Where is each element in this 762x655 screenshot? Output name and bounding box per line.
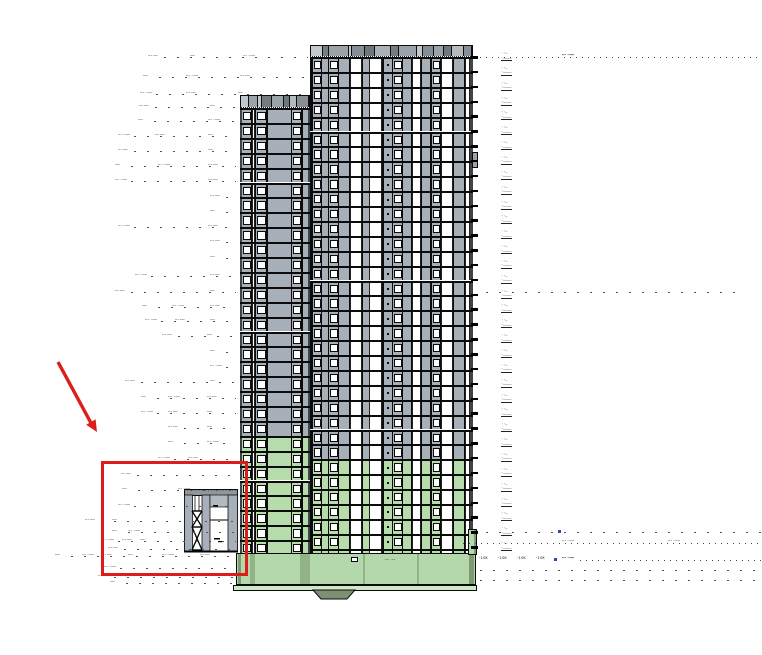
annotation-text: —— (168, 440, 173, 444)
annotation-text: —··—— (210, 364, 222, 368)
annotation-text: —— (110, 580, 115, 584)
level-tick (471, 205, 478, 208)
level-tick (471, 383, 478, 386)
level-tick (471, 130, 478, 133)
level-tick (471, 398, 478, 401)
level-label: ··—·———— (501, 156, 512, 165)
leader-line (226, 352, 236, 353)
annotation-text: —— (141, 395, 146, 399)
level-label: ··—·———— (501, 111, 512, 120)
level-label: ··—·———— (501, 349, 512, 358)
leader-line (178, 336, 236, 337)
leader-line (174, 459, 236, 460)
leader-line (480, 580, 762, 581)
annotation-text: —··—— (158, 456, 170, 460)
level-label: ··—·———— (501, 245, 512, 254)
level-tick (471, 86, 478, 89)
level-label: ··—·———— (501, 379, 512, 388)
annotation-text: —·—— (85, 518, 95, 522)
leader-line (131, 292, 236, 293)
level-tick (471, 412, 478, 415)
level-label: ··—·———— (501, 186, 512, 195)
leader-line (226, 197, 236, 198)
level-tick (471, 353, 478, 356)
level-label: ··—·———— (501, 290, 512, 299)
level-label: ··—·———— (501, 423, 512, 432)
leader-line (159, 77, 308, 78)
level-label: ··—·———— (501, 304, 512, 313)
level-tick (471, 487, 478, 490)
leader-line (226, 258, 236, 259)
level-label: ··—·———— (501, 260, 512, 269)
annotation-text: —— (138, 118, 143, 122)
leader-line (486, 532, 762, 533)
leader-line (480, 570, 762, 571)
level-tick (471, 502, 478, 505)
level-tick (471, 71, 478, 74)
level-tick (471, 308, 478, 311)
leader-line (131, 166, 236, 167)
level-label: ··—·———— (501, 334, 512, 343)
leader-line (134, 136, 236, 137)
annotation-text: —··—— (141, 410, 153, 414)
annotation-text: —··—— (145, 318, 157, 322)
annotation-text: —·—— (125, 379, 135, 383)
annotation-text: —··—— (140, 91, 152, 95)
level-tick (471, 279, 478, 282)
annotation-text: —— (115, 163, 120, 167)
level-tick (471, 323, 478, 326)
leader-line (184, 443, 236, 444)
markup-rectangle (101, 461, 248, 576)
leader-line (580, 560, 762, 561)
level-label: ··—·———— (501, 394, 512, 403)
leader-line (114, 577, 236, 578)
annotation-text: —— (210, 209, 215, 213)
leader-line (161, 321, 236, 322)
level-tick (471, 427, 478, 430)
level-label: ··—·———— (501, 512, 512, 521)
annotation-text: —··—— (668, 539, 680, 543)
level-tick (471, 145, 478, 148)
annotation-text: —··—— (135, 273, 147, 277)
leader-line (134, 151, 236, 152)
annotation-text: —··—— (562, 539, 574, 543)
level-label: ··—·———— (501, 498, 512, 507)
elevation-drawing-canvas: ·— —· —·—————··—————··———·———··———·—————… (0, 0, 762, 655)
annotation-text: —··—— (562, 556, 574, 560)
level-label: ··—·———— (501, 201, 512, 210)
leader-line (154, 121, 236, 122)
level-tick (471, 219, 478, 222)
level-tick (471, 516, 478, 519)
annotation-text: —— (210, 255, 215, 259)
level-label: ··—·———— (501, 275, 512, 284)
leader-line (134, 227, 236, 228)
level-label: ··—·———— (501, 82, 512, 91)
level-tick (471, 190, 478, 193)
level-label: ··—·———— (501, 230, 512, 239)
leader-line (131, 181, 236, 182)
leader-line (141, 382, 236, 383)
level-tick (471, 338, 478, 341)
annotation-text: ·ısĸ (478, 556, 488, 560)
level-tick (471, 531, 478, 534)
level-tick (471, 101, 478, 104)
level-tick (471, 249, 478, 252)
level-label: ··—·———— (501, 364, 512, 373)
annotation-text: —·—— (118, 148, 128, 152)
level-label: ··—·———— (501, 438, 512, 447)
annotation-text: —·—— (139, 104, 149, 108)
annotation-text: ·ısĸ (535, 556, 545, 560)
level-tick (471, 115, 478, 118)
level-tick (471, 368, 478, 371)
annotation-text: —·—— (210, 194, 220, 198)
level-label: ··—·———— (501, 171, 512, 180)
annotation-text: —— (143, 74, 148, 78)
annotation-text: —— (142, 304, 147, 308)
level-tick (471, 160, 478, 163)
level-tick (471, 294, 478, 297)
level-tick (471, 175, 478, 178)
level-tick (471, 472, 478, 475)
annotation-text: —— (55, 553, 60, 557)
leader-line (486, 292, 742, 293)
blue-tick (558, 530, 561, 533)
annotation-text: —··—— (118, 133, 130, 137)
annotation-text: —·—— (168, 425, 178, 429)
leader-line (226, 242, 236, 243)
leader-line (158, 307, 236, 308)
leader-line (226, 367, 236, 368)
level-tick (471, 457, 478, 460)
level-tick (471, 442, 478, 445)
leader-line (226, 212, 236, 213)
level-label: ··—·———— (501, 67, 512, 76)
level-label: ··—·———— (501, 408, 512, 417)
level-tick (471, 234, 478, 237)
annotation-text: —··—— (562, 53, 574, 57)
annotation-text: —··—— (118, 224, 130, 228)
level-tick (471, 264, 478, 267)
leader-line (157, 413, 236, 414)
leader-line (126, 583, 236, 584)
leader-line (155, 107, 236, 108)
leader-line (151, 276, 236, 277)
annotation-text: —— (210, 349, 215, 353)
annotation-text: —·—— (210, 239, 220, 243)
leader-line (184, 428, 236, 429)
blue-tick (554, 558, 557, 561)
annotation-text: —·—— (115, 289, 125, 293)
level-label: ··—·———— (501, 126, 512, 135)
leader-line (480, 57, 762, 58)
level-label: ··—·———— (501, 453, 512, 462)
leader-line (157, 398, 236, 399)
annotation-text: —··—— (115, 178, 127, 182)
level-label: ··—·———— (501, 215, 512, 224)
level-tick (471, 546, 478, 549)
level-label: ··—·———— (501, 97, 512, 106)
level-tick (471, 56, 478, 59)
level-label: ··—·———— (501, 319, 512, 328)
annotation-text: ·ısĸ (497, 556, 507, 560)
level-label: ··—·———— (501, 141, 512, 150)
level-label: ··—·———— (501, 468, 512, 477)
level-label: ··—·———— (501, 483, 512, 492)
leader-line (156, 94, 308, 95)
annotation-text: ·ısĸ (516, 556, 526, 560)
leader-line (463, 543, 762, 544)
annotation-text: —·—— (148, 54, 158, 58)
leader-line (164, 57, 308, 58)
annotation-text: —·—— (162, 333, 172, 337)
